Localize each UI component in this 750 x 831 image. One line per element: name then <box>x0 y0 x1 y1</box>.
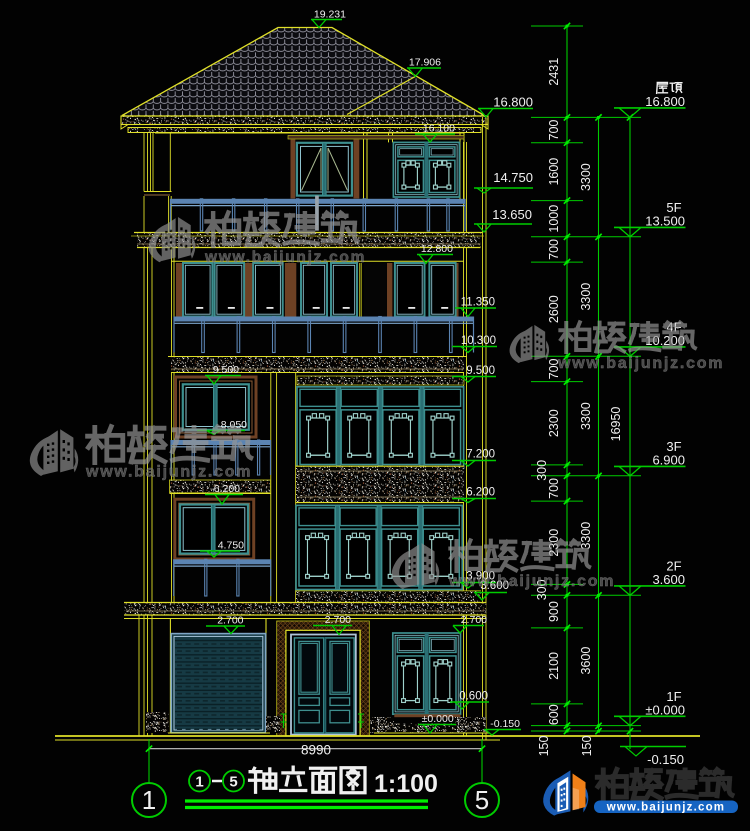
svg-text:3300: 3300 <box>579 283 593 311</box>
svg-text:3.600: 3.600 <box>652 572 685 587</box>
svg-text:-0.150: -0.150 <box>647 752 684 767</box>
svg-text:www.baijunjz.com: www.baijunjz.com <box>448 573 615 590</box>
svg-text:16.100: 16.100 <box>423 123 455 135</box>
svg-text:1600: 1600 <box>547 158 561 186</box>
svg-text:700: 700 <box>547 239 561 260</box>
svg-text:www.baijunjz.com: www.baijunjz.com <box>85 464 252 481</box>
svg-text:6.200: 6.200 <box>466 487 495 499</box>
svg-text:8990: 8990 <box>301 743 331 758</box>
svg-text:3300: 3300 <box>579 402 593 430</box>
svg-text:-0.150: -0.150 <box>490 718 520 730</box>
svg-text:2F: 2F <box>666 558 681 573</box>
svg-text:2.700: 2.700 <box>217 615 243 627</box>
svg-text:150: 150 <box>580 736 594 757</box>
svg-text:www.baijunjz.com: www.baijunjz.com <box>204 249 366 266</box>
svg-text:5: 5 <box>475 785 489 815</box>
svg-text:1: 1 <box>195 774 203 791</box>
svg-text:3300: 3300 <box>579 163 593 191</box>
svg-text:10.300: 10.300 <box>461 335 496 347</box>
svg-text:1: 1 <box>142 785 156 815</box>
svg-text:16950: 16950 <box>609 407 623 442</box>
svg-text:2.700: 2.700 <box>325 614 351 626</box>
svg-text:16.800: 16.800 <box>645 94 685 109</box>
svg-text:300: 300 <box>535 460 549 481</box>
svg-text:9.500: 9.500 <box>466 365 495 377</box>
svg-text:700: 700 <box>547 478 561 499</box>
svg-text:1F: 1F <box>666 689 681 704</box>
svg-text:www.baijunjz.com: www.baijunjz.com <box>606 802 725 814</box>
svg-text:7.200: 7.200 <box>466 449 495 461</box>
svg-text:2300: 2300 <box>547 409 561 437</box>
svg-text:±0.000: ±0.000 <box>422 713 454 725</box>
svg-text:5F: 5F <box>666 200 681 215</box>
svg-text:900: 900 <box>547 601 561 622</box>
svg-text:17.906: 17.906 <box>409 57 441 69</box>
svg-text:3F: 3F <box>666 439 681 454</box>
svg-text:6.900: 6.900 <box>652 452 685 467</box>
svg-text:5: 5 <box>229 774 237 791</box>
svg-text:1:100: 1:100 <box>374 770 438 798</box>
svg-text:13.500: 13.500 <box>645 213 685 228</box>
svg-text:9.500: 9.500 <box>213 364 239 376</box>
svg-text:6.200: 6.200 <box>214 483 240 495</box>
svg-text:16.800: 16.800 <box>493 95 533 110</box>
svg-text:www.baijunjz.com: www.baijunjz.com <box>557 355 724 372</box>
svg-text:150: 150 <box>537 736 551 757</box>
svg-text:2431: 2431 <box>547 58 561 86</box>
svg-text:2600: 2600 <box>547 295 561 323</box>
svg-text:±0.000: ±0.000 <box>645 702 685 717</box>
svg-text:1000: 1000 <box>547 205 561 233</box>
svg-text:0.600: 0.600 <box>459 691 488 703</box>
svg-text:4.750: 4.750 <box>218 540 244 552</box>
svg-text:13.650: 13.650 <box>492 207 532 222</box>
svg-text:600: 600 <box>547 704 561 725</box>
svg-text:3600: 3600 <box>579 647 593 675</box>
svg-text:700: 700 <box>547 120 561 141</box>
svg-text:2.700: 2.700 <box>461 614 487 626</box>
svg-text:14.750: 14.750 <box>493 170 533 185</box>
svg-text:12.800: 12.800 <box>421 243 453 255</box>
svg-text:3300: 3300 <box>579 522 593 550</box>
svg-text:11.350: 11.350 <box>461 297 495 309</box>
svg-text:2100: 2100 <box>547 652 561 680</box>
